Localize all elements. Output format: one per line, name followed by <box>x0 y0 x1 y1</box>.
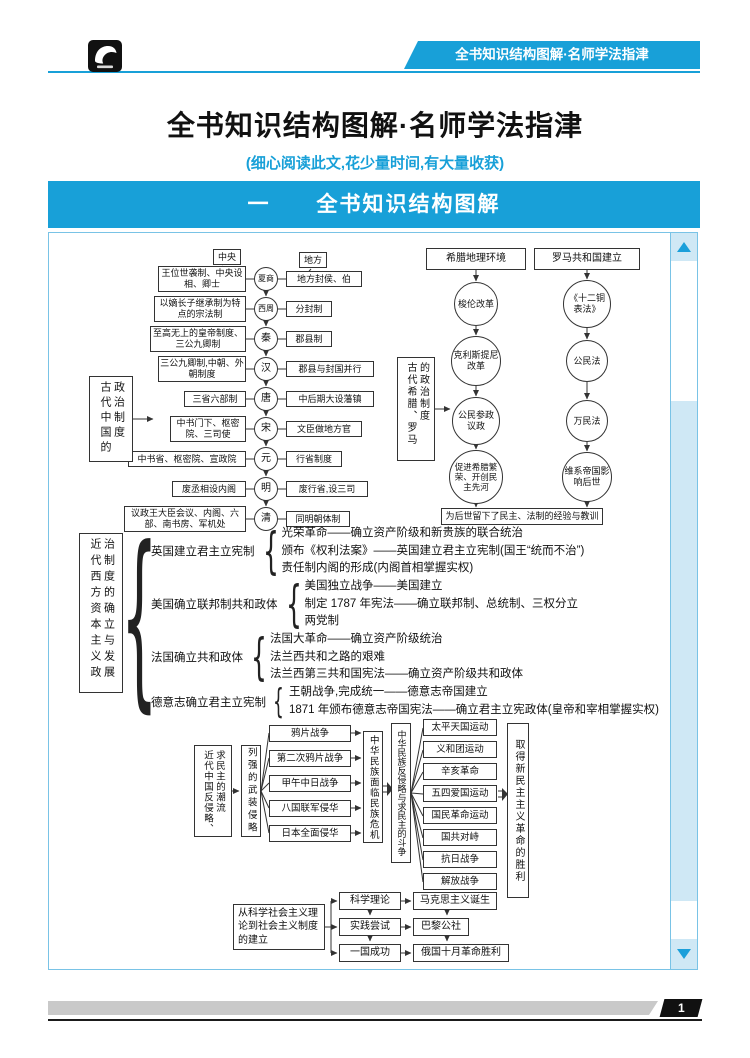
ancient-china-label: 古代中国的 政治制度 <box>89 376 133 462</box>
local-system-box: 郡县与封国并行 <box>286 361 374 377</box>
branch-items: 法国大革命——确立资产阶级统治 法兰西共和之路的艰难 法兰西第三共和国宪法——确… <box>270 631 523 684</box>
label-column: 求民主的潮流 <box>214 750 224 813</box>
branch-item: 颁布《权利法案》——英国建立君主立宪制(国王“统而不治”) <box>282 543 585 561</box>
local-system-box: 郡县制 <box>286 331 332 347</box>
rome-node: 万民法 <box>566 400 608 442</box>
scrollbar-track-lower[interactable] <box>671 901 697 939</box>
result-box: 马克思主义诞生 <box>413 892 497 910</box>
page-title: 全书知识结构图解·名师学法指津 <box>0 104 750 144</box>
war-box: 第二次鸦片战争 <box>269 750 351 767</box>
branch-item: 王朝战争,完成统一——德意志帝国建立 <box>289 684 659 702</box>
france-branch: 法国确立共和政体 { 法国大革命——确立资产阶级统治 法兰西共和之路的艰难 法兰… <box>151 631 523 684</box>
dynasty-node: 宋 <box>254 417 278 441</box>
rome-node: 维系帝国影响后世 <box>562 452 612 502</box>
greece-node: 梭伦改革 <box>454 282 498 326</box>
central-system-box: 以嫡长子继承制为特点的宗法制 <box>154 296 246 322</box>
brace-icon: { <box>273 685 281 719</box>
war-box: 甲午中日战争 <box>269 775 351 792</box>
branch-item: 法兰西第三共和国宪法——确立资产阶级共和政体 <box>270 666 523 684</box>
fox-logo-icon <box>88 40 122 72</box>
dynasty-node: 秦 <box>254 327 278 351</box>
movement-box: 辛亥革命 <box>423 763 497 780</box>
germany-branch: 德意志确立君主立宪制 { 王朝战争,完成统一——德意志帝国建立 1871 年颁布… <box>151 684 659 719</box>
scroll-down-button[interactable] <box>671 939 697 969</box>
movement-box: 义和团运动 <box>423 741 497 758</box>
war-box: 日本全面侵华 <box>269 825 351 842</box>
greece-node: 促进希腊繁荣、开创民主先河 <box>449 450 503 504</box>
scrollbar[interactable] <box>670 233 697 969</box>
war-box: 鸦片战争 <box>269 725 351 742</box>
invaders-box: 列强的武装侵略 <box>241 745 261 837</box>
branch-title: 美国确立联邦制共和政体 <box>151 596 278 612</box>
struggle-box: 中华民族反侵略与求民主的斗争 <box>391 723 411 863</box>
scroll-down-icon <box>677 949 691 959</box>
modern-china-label: 近代中国反侵略、 求民主的潮流 <box>194 745 232 837</box>
outer-brace: { <box>121 523 151 719</box>
dynasty-node: 明 <box>254 477 278 501</box>
local-system-box: 地方封侯、伯 <box>286 271 362 287</box>
branch-items: 美国独立战争——美国建立 制定 1787 年宪法——确立联邦制、总统制、三权分立… <box>305 578 578 631</box>
footer-bar <box>48 1001 658 1015</box>
label-column: 治制度的确立与发展 <box>102 538 114 682</box>
branch-item: 两党制 <box>305 613 578 631</box>
label-column: 政治制度 <box>112 381 124 441</box>
book-page: 全书知识结构图解·名师学法指津 全书知识结构图解·名师学法指津 (细心阅读此文,… <box>0 0 750 1058</box>
central-system-box: 至高无上的皇帝制度、三公九卿制 <box>150 326 246 352</box>
brace-icon: { <box>263 526 273 576</box>
local-system-box: 行省制度 <box>286 451 342 467</box>
dynasty-node: 元 <box>254 447 278 471</box>
dynasty-node: 西周 <box>254 297 278 321</box>
knowledge-diagram: 中央 地方 夏商 西周 秦 汉 唐 宋 元 明 清 王位世袭制、中央设相、卿士 … <box>48 232 698 970</box>
central-system-box: 王位世袭制、中央设相、卿士 <box>158 266 246 292</box>
rome-top-box: 罗马共和国建立 <box>534 248 640 270</box>
branch-item: 美国独立战争——美国建立 <box>305 578 578 596</box>
page-number-tab: 1 <box>660 999 703 1017</box>
modern-west-label: 近代西方资本主义政 治制度的确立与发展 <box>79 533 123 693</box>
greece-node: 克利斯提尼改革 <box>451 336 501 386</box>
section-banner: 一 全书知识结构图解 <box>48 181 700 228</box>
movement-box: 国共对峙 <box>423 829 497 846</box>
local-system-box: 废行省,设三司 <box>286 481 368 497</box>
war-box: 八国联军侵华 <box>269 800 351 817</box>
central-system-box: 中书门下、枢密院、三司使 <box>170 416 246 442</box>
publisher-logo <box>88 40 122 72</box>
label-column: 的政治制度 <box>417 362 428 422</box>
central-system-box: 废丞相设内阁 <box>172 481 246 497</box>
usa-branch: 美国确立联邦制共和政体 { 美国独立战争——美国建立 制定 1787 年宪法——… <box>151 578 578 631</box>
victory-box: 取得新民主主义革命的胜利 <box>507 723 529 898</box>
header-rule <box>48 71 700 73</box>
label-column: 近代中国反侵略、 <box>202 750 212 834</box>
scrollbar-track[interactable] <box>671 401 697 901</box>
dynasty-node: 汉 <box>254 357 278 381</box>
dynasty-node: 夏商 <box>254 267 278 291</box>
branch-title: 法国确立共和政体 <box>151 649 243 665</box>
branch-items: 王朝战争,完成统一——德意志帝国建立 1871 年颁布德意志帝国宪法——确立君主… <box>289 684 659 719</box>
movement-box: 抗日战争 <box>423 851 497 868</box>
label-column: 古代希腊、罗马 <box>405 362 416 446</box>
movement-box: 太平天国运动 <box>423 719 497 736</box>
page-number: 1 <box>678 999 685 1017</box>
branch-item: 制定 1787 年宪法——确立联邦制、总统制、三权分立 <box>305 596 578 614</box>
scroll-up-icon <box>677 242 691 252</box>
branch-item: 法兰西共和之路的艰难 <box>270 649 523 667</box>
header-tab-label: 全书知识结构图解·名师学法指津 <box>455 47 649 62</box>
label-column: 古代中国的 <box>98 381 110 456</box>
scroll-up-button[interactable] <box>671 233 697 261</box>
label-column: 近代西方资本主义政 <box>88 538 100 682</box>
branch-title: 英国建立君主立宪制 <box>151 543 255 559</box>
central-system-box: 中书省、枢密院、宣政院 <box>128 451 246 467</box>
branch-item: 法国大革命——确立资产阶级统治 <box>270 631 523 649</box>
stage-box: 实践尝试 <box>339 918 401 936</box>
movement-box: 国民革命运动 <box>423 807 497 824</box>
result-box: 巴黎公社 <box>413 918 469 936</box>
movement-box: 五四爱国运动 <box>423 785 497 802</box>
local-system-box: 分封制 <box>286 301 332 317</box>
central-system-box: 三公九卿制,中朝、外朝制度 <box>158 356 246 382</box>
local-system-box: 中后期大设藩镇 <box>286 391 374 407</box>
central-tag: 中央 <box>213 249 241 265</box>
movement-box: 解放战争 <box>423 873 497 890</box>
result-box: 俄国十月革命胜利 <box>413 944 509 962</box>
footer-rule <box>48 1019 702 1021</box>
local-system-box: 文臣做地方官 <box>286 421 362 437</box>
greece-rome-legacy-box: 为后世留下了民主、法制的经验与教训 <box>441 508 603 525</box>
branch-item: 责任制内阁的形成(内阁首相掌握实权) <box>282 560 585 578</box>
stage-box: 一国成功 <box>339 944 401 962</box>
brace-icon: { <box>251 632 261 682</box>
page-subtitle: (细心阅读此文,花少量时间,有大量收获) <box>0 152 750 173</box>
local-tag: 地方 <box>299 252 327 268</box>
britain-branch: 英国建立君主立宪制 { 光荣革命——确立资产阶级和新贵族的联合统治 颁布《权利法… <box>151 525 584 578</box>
greece-top-box: 希腊地理环境 <box>426 248 526 270</box>
crisis-box: 中华民族面临民族危机 <box>363 731 383 843</box>
socialism-intro-box: 从科学社会主义理论到社会主义制度的建立 <box>233 904 325 950</box>
rome-node: 《十二铜表法》 <box>563 280 611 328</box>
branch-title: 德意志确立君主立宪制 <box>151 694 266 710</box>
scrollbar-thumb[interactable] <box>671 261 697 401</box>
page-header-tab: 全书知识结构图解·名师学法指津 <box>404 41 700 69</box>
branch-item: 1871 年颁布德意志帝国宪法——确立君主立宪政体(皇帝和宰相掌握实权) <box>289 702 659 720</box>
branch-items: 光荣革命——确立资产阶级和新贵族的联合统治 颁布《权利法案》——英国建立君主立宪… <box>282 525 585 578</box>
central-system-box: 三省六部制 <box>184 391 246 407</box>
rome-node: 公民法 <box>566 340 608 382</box>
branch-item: 光荣革命——确立资产阶级和新贵族的联合统治 <box>282 525 585 543</box>
stage-box: 科学理论 <box>339 892 401 910</box>
greece-rome-label: 古代希腊、罗马 的政治制度 <box>397 357 435 461</box>
dynasty-node: 唐 <box>254 387 278 411</box>
greece-node: 公民参政议政 <box>452 397 500 445</box>
brace-icon: { <box>286 579 296 629</box>
